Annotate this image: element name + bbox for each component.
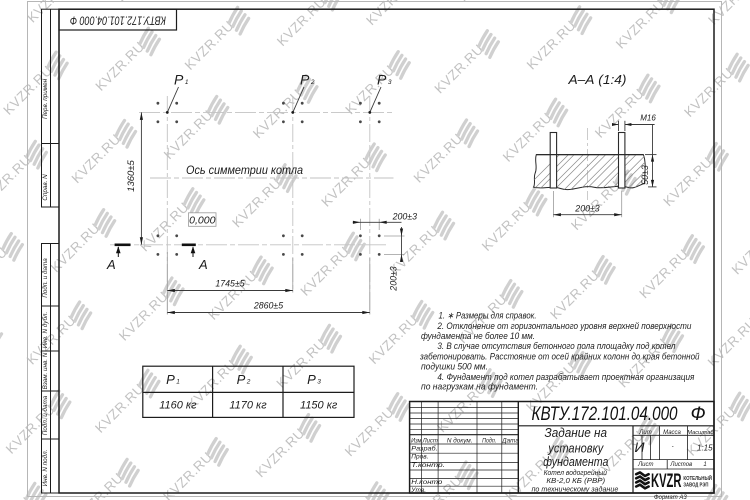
svg-text:по нагрузкам на фундамент.: по нагрузкам на фундамент. [421, 382, 538, 392]
svg-text:200±3: 200±3 [574, 203, 600, 213]
svg-text:2860±5: 2860±5 [253, 301, 283, 311]
svg-text:Масштаб: Масштаб [687, 430, 714, 436]
svg-text:КВТУ.172.101.04.000: КВТУ.172.101.04.000 [532, 404, 678, 425]
svg-text:KVZR.RU: KVZR.RU [161, 107, 216, 162]
svg-text:KVZR.RU: KVZR.RU [366, 312, 421, 367]
svg-text:KVZR.RU: KVZR.RU [729, 222, 750, 277]
svg-text:KVZR.RU: KVZR.RU [116, 289, 171, 344]
svg-text:1745±5: 1745±5 [215, 279, 244, 289]
svg-text:KVZR.RU: KVZR.RU [93, 39, 148, 94]
svg-text:И: И [634, 439, 645, 455]
svg-text:KVZR.RU: KVZR.RU [274, 0, 329, 49]
svg-text:KVZR.RU: KVZR.RU [681, 65, 736, 120]
svg-text:KVZR.RU: KVZR.RU [69, 131, 124, 186]
svg-text:KVZR.RU: KVZR.RU [411, 131, 466, 186]
svg-text:1. ∗ Размеры для справок.: 1. ∗ Размеры для справок. [439, 311, 537, 321]
svg-text:Котел водогрейный: Котел водогрейный [544, 469, 607, 477]
svg-text:P2: P2 [237, 372, 251, 387]
svg-text:KVZR.RU: KVZR.RU [92, 381, 147, 436]
svg-text:Задание на: Задание на [545, 426, 608, 440]
svg-text:1360±5: 1360±5 [126, 159, 137, 191]
svg-text:Дата: Дата [501, 437, 519, 444]
svg-text:1170 кг: 1170 кг [229, 400, 267, 412]
svg-text:KVZR: KVZR [651, 470, 682, 492]
svg-text:КВ-2,0 КБ (РВР): КВ-2,0 КБ (РВР) [546, 478, 605, 485]
svg-text:1160 кг: 1160 кг [159, 400, 197, 412]
svg-text:0,000: 0,000 [189, 214, 215, 226]
svg-text:2. Отклонение от горизонтально: 2. Отклонение от горизонтального уровня … [436, 321, 691, 331]
svg-text:Взам. инв. N: Взам. инв. N [42, 352, 49, 389]
svg-text:Листов: Листов [669, 462, 692, 468]
svg-text:KVZR.RU: KVZR.RU [636, 246, 691, 301]
svg-text:А–А (1:4): А–А (1:4) [567, 73, 626, 87]
svg-text:KVZR.RU: KVZR.RU [3, 402, 58, 457]
svg-text:KVZR.RU: KVZR.RU [253, 425, 308, 480]
svg-text:по техническому задание: по техническому задание [532, 485, 619, 493]
svg-text:KVZR.RU: KVZR.RU [182, 18, 237, 73]
svg-text:Разраб.: Разраб. [411, 444, 438, 452]
svg-text:KVZR.RU: KVZR.RU [660, 154, 715, 209]
svg-text:фундамента: фундамента [543, 455, 608, 469]
svg-text:KVZR.RU: KVZR.RU [500, 110, 555, 165]
svg-text:P1: P1 [166, 372, 180, 387]
svg-text:Лист: Лист [422, 437, 439, 444]
svg-text:ЗАВОД РЭП: ЗАВОД РЭП [683, 482, 708, 488]
svg-text:P1: P1 [174, 72, 189, 88]
svg-text:KVZR.RU: KVZR.RU [705, 315, 750, 370]
svg-text:KVZR.RU: KVZR.RU [48, 220, 103, 275]
svg-text:KVZR.RU: KVZR.RU [432, 41, 487, 96]
svg-text:установку: установку [547, 442, 604, 456]
svg-text:Подп. и дата: Подп. и дата [41, 395, 49, 435]
svg-text:1: 1 [703, 462, 706, 468]
svg-text:KVZR.RU: KVZR.RU [363, 0, 418, 28]
svg-text:4. Фундамент под котел разраба: 4. Фундамент под котел разрабатывает про… [437, 372, 694, 382]
svg-text:КВТУ.172.101.04.000 Ф: КВТУ.172.101.04.000 Ф [70, 13, 166, 25]
svg-text:KVZR.RU: KVZR.RU [318, 155, 373, 210]
svg-text:N докум.: N докум. [447, 436, 473, 444]
svg-text:Подп. и дата: Подп. и дата [41, 258, 49, 298]
svg-text:3. В случае отсутствия бетонно: 3. В случае отсутствия бетонного пола пл… [437, 341, 675, 351]
svg-text:KVZR.RU: KVZR.RU [613, 0, 668, 52]
svg-text:200±3: 200±3 [392, 212, 418, 222]
svg-text:Ось симметрии котла: Ось симметрии котла [186, 165, 303, 177]
svg-text:Лист: Лист [637, 462, 653, 468]
svg-text:Формат А3: Формат А3 [654, 495, 687, 500]
svg-text:KVZR.RU: KVZR.RU [137, 199, 192, 254]
svg-text:1:15: 1:15 [697, 444, 713, 453]
svg-text:KVZR.RU: KVZR.RU [24, 313, 79, 368]
svg-text:P2: P2 [300, 72, 315, 88]
svg-text:Инв. N дубл.: Инв. N дубл. [41, 312, 49, 348]
svg-text:KVZR.RU: KVZR.RU [479, 199, 534, 254]
svg-text:KVZR.RU: KVZR.RU [113, 0, 168, 5]
svg-text:Справ. N: Справ. N [42, 174, 49, 201]
svg-text:Н.контр: Н.контр [411, 479, 442, 486]
svg-text:Ф: Ф [690, 404, 705, 425]
svg-text:Т.контр.: Т.контр. [411, 462, 445, 469]
svg-text:КОТЕЛЬНЫЙ: КОТЕЛЬНЫЙ [683, 474, 712, 482]
svg-text:Утв.: Утв. [410, 487, 426, 494]
svg-text:KVZR.RU: KVZR.RU [229, 175, 284, 230]
svg-text:Перв. примен: Перв. примен [42, 78, 49, 119]
svg-text:фундамента не более 10 мм.: фундамента не более 10 мм. [421, 331, 535, 341]
svg-text:забетонировать. Расстояние от: забетонировать. Расстояние от осей крайн… [419, 352, 699, 362]
svg-text:Пров.: Пров. [411, 453, 428, 460]
svg-text:KVZR.RU: KVZR.RU [205, 268, 260, 323]
svg-text:KVZR.RU: KVZR.RU [298, 244, 353, 299]
svg-text:P3: P3 [307, 372, 321, 387]
svg-text:1150 кг: 1150 кг [300, 400, 338, 412]
svg-text:KVZR.RU: KVZR.RU [705, 0, 750, 28]
svg-text:KVZR.RU: KVZR.RU [524, 18, 579, 73]
svg-text:М16: М16 [640, 114, 656, 123]
svg-text:-: - [672, 444, 674, 450]
svg-text:KVZR.RU: KVZR.RU [250, 86, 305, 141]
svg-text:подушки 500 мм.: подушки 500 мм. [421, 361, 488, 371]
svg-text:Изм: Изм [411, 437, 422, 444]
svg-text:Подп.: Подп. [482, 436, 496, 444]
svg-text:KVZR.RU: KVZR.RU [455, 0, 510, 4]
svg-text:200±3: 200±3 [388, 266, 398, 292]
svg-text:Инв. N подл.: Инв. N подл. [41, 450, 49, 487]
svg-text:А: А [198, 257, 208, 272]
svg-text:KVZR.RU: KVZR.RU [547, 267, 602, 322]
svg-text:KVZR.RU: KVZR.RU [342, 404, 397, 459]
svg-text:А: А [106, 257, 116, 272]
svg-text:Масса: Масса [663, 430, 681, 436]
svg-text:Лит: Лит [638, 430, 651, 436]
svg-text:50±3: 50±3 [640, 165, 650, 185]
